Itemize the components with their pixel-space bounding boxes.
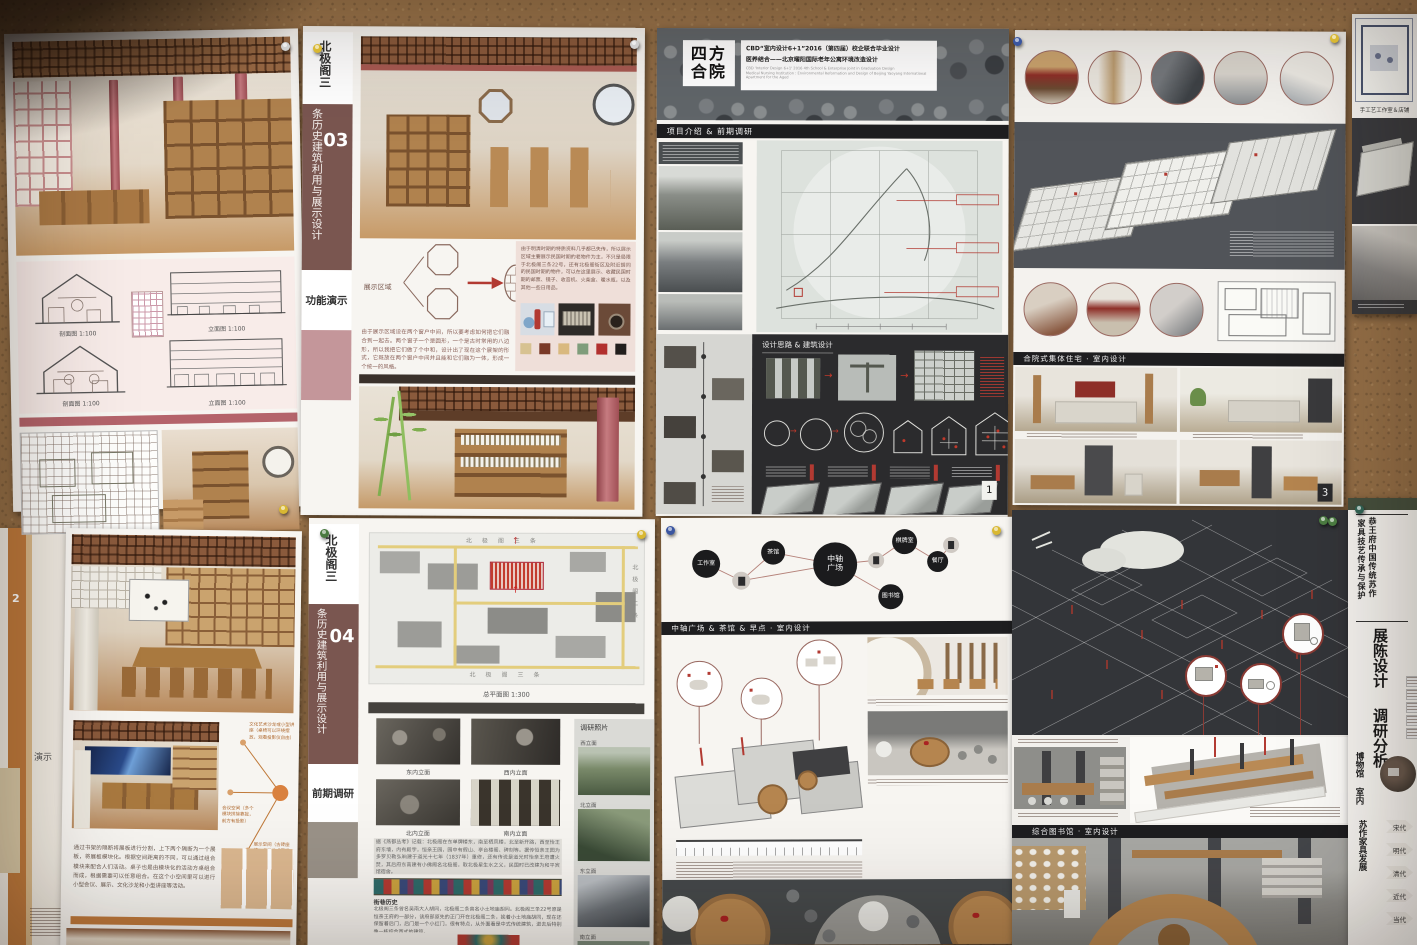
research-photo xyxy=(578,941,650,945)
plan-room-fill xyxy=(1370,45,1398,71)
table-row xyxy=(1406,702,1417,713)
display-shelves xyxy=(386,114,470,206)
intro-text-block xyxy=(659,142,743,164)
sketch-table xyxy=(823,656,835,664)
section-bar-library: 综合图书馆 · 室内设计 xyxy=(1012,825,1353,838)
bubble-studio: 工作室 xyxy=(692,550,720,578)
caption-lines xyxy=(890,467,930,479)
red-dot xyxy=(708,672,711,675)
building-block xyxy=(398,621,442,647)
rendering-strip-bottom xyxy=(66,928,290,945)
plan-outline xyxy=(1361,25,1409,95)
sketch-clock xyxy=(1310,637,1318,645)
caption-lines xyxy=(868,779,1008,785)
dark-partition xyxy=(1252,446,1272,498)
stool xyxy=(974,745,983,754)
stool xyxy=(804,909,817,922)
rendering-plaza-dark xyxy=(662,879,1014,945)
callout-stem xyxy=(1203,692,1204,735)
radio-face xyxy=(562,311,590,325)
research-label: 南立面 xyxy=(580,933,597,941)
page-number: 3 xyxy=(1322,487,1328,498)
bubble-label: 餐厅 xyxy=(932,558,944,565)
red-panel xyxy=(1075,381,1115,397)
poster-exhibit-sheet-top-left: 剖面图 1:100 立面图 1:100 剖面图 1:100 xyxy=(4,28,307,512)
bubble-restaurant: 餐厅 xyxy=(927,551,948,572)
flow-label: 文化艺术沙龙或小型讲座（桌椅可以环绕摆放，观看投影仪自由） xyxy=(249,723,295,743)
research-photo xyxy=(578,747,650,795)
red-divider-band xyxy=(19,412,297,426)
rendering-teahouse xyxy=(867,637,1007,695)
push-pin xyxy=(992,526,1001,535)
era-label: 宋代 xyxy=(1393,822,1406,832)
teahouse-icon-circle xyxy=(732,572,750,590)
arrow-marker: → xyxy=(824,370,832,381)
plan-room-block xyxy=(91,452,134,485)
red-beam xyxy=(361,64,637,71)
plan-thumb xyxy=(914,351,974,401)
sketch-table xyxy=(752,695,770,705)
arrow-marker: → xyxy=(832,426,839,435)
research-photo xyxy=(578,875,650,927)
era-label: 明代 xyxy=(1393,845,1406,855)
timeline-photo xyxy=(664,482,696,504)
road-yellow xyxy=(375,665,639,669)
phase-tag-red xyxy=(872,465,876,481)
road-label-top: 北极阁三条 xyxy=(466,536,546,545)
ceiling-lattice xyxy=(12,37,291,78)
flow-label: 会议空间（多个模块拼接靠拢，前方有投影） xyxy=(222,806,256,825)
heading-group: 恭王府中国传统苏作 家具技艺传承与保护 xyxy=(1356,514,1408,622)
building-block xyxy=(453,646,499,664)
rendering-bedroom-a xyxy=(1015,367,1177,432)
interior-photo xyxy=(471,780,560,826)
push-pin xyxy=(1319,516,1328,525)
road-yellow xyxy=(621,546,624,669)
caption-lines xyxy=(1250,807,1340,819)
header-text-box: CBD“室内设计6+1”2016（第四届）校企联合毕业设计 医养结合——北京曜阳… xyxy=(741,40,937,91)
sidebar-section: 前期调研 xyxy=(308,764,358,822)
house-outline-diagram xyxy=(974,411,1008,457)
sidebar-title-white: 北极阁三 xyxy=(309,524,359,604)
bubble-label: 中轴广场 xyxy=(826,556,844,574)
rendering-bench-corner xyxy=(1014,747,1126,809)
red-item xyxy=(972,913,979,918)
photo-label: 西内立面 xyxy=(471,768,560,777)
description-lines xyxy=(1230,231,1334,258)
white-pillar xyxy=(73,608,98,710)
chair xyxy=(1125,474,1143,496)
timeline-strip xyxy=(656,334,752,514)
poster-beijige-sheet-04: 北极阁三 条历史建筑利用与展示设计 04 前期调研 ↑ ↑ xyxy=(308,518,655,945)
site-plan: ↑ ↑ 北极阁三条 北极阁三条 北极阁二条 xyxy=(368,532,645,685)
sketch-shelf xyxy=(1195,667,1213,681)
mini-table-rows xyxy=(1406,676,1417,738)
detail-callout-circle xyxy=(1185,655,1227,697)
white-cylinder xyxy=(858,901,888,931)
wood-frame xyxy=(1145,374,1153,424)
callout-stem xyxy=(1258,700,1259,735)
dark-cabinet xyxy=(1308,379,1332,423)
caption-lines xyxy=(1358,304,1404,310)
development-label: 苏作家具发展 xyxy=(1356,820,1368,906)
sheet-number: 04 xyxy=(329,626,354,647)
paragraph-left: 由于展示区域设在两个窗户中间，所以要考虑如何把它们融合到一起去。两个窗子一个是圆… xyxy=(361,328,509,371)
wood-frame xyxy=(1033,375,1041,423)
callout-stem xyxy=(699,706,700,744)
sidebar-title-dark: 条历史建筑利用与展示设计 03 xyxy=(302,104,353,270)
color-swatch xyxy=(539,343,550,354)
page-number-tag: 3 xyxy=(1318,484,1333,502)
white-pot xyxy=(1060,797,1068,805)
era-label: 当代 xyxy=(1393,914,1406,924)
era-chevron-jindai: 近代 xyxy=(1386,889,1413,902)
tan-strip xyxy=(26,528,32,945)
reading-tables xyxy=(39,189,150,225)
elevation-strip xyxy=(676,839,862,856)
title-line1: CBD“室内设计6+1”2016（第四届）校企联合毕业设计 xyxy=(746,43,932,52)
ceiling-lattice xyxy=(71,534,295,567)
color-swatch xyxy=(596,344,607,355)
section-drawing xyxy=(30,340,131,398)
rendering-axon-wood xyxy=(1130,737,1351,823)
page-number: 1 xyxy=(986,485,992,496)
ceiling-lattice xyxy=(361,36,637,65)
poster-sifang-heyuan-sheet1: 四方合院 CBD“室内设计6+1”2016（第四届）校企联合毕业设计 医养结合—… xyxy=(656,28,1009,517)
section-bar-housing: 合院式集体住宅 · 室内设计 xyxy=(1013,352,1344,367)
poster-beijige-sheet-03: 北极阁三 条历史建筑利用与展示设计 03 功能演示 展示区域 xyxy=(300,26,645,517)
rendering-circle-cabinet xyxy=(1025,50,1079,104)
axon-panel-dark xyxy=(1352,118,1417,224)
push-pin xyxy=(281,42,290,51)
color-swat​ch xyxy=(577,343,588,354)
calligraphy-board xyxy=(129,579,190,622)
photo-label: 南内立面 xyxy=(471,829,560,838)
people-diagram-circle xyxy=(764,420,790,446)
poster-sifang-heyuan-sheet2: 工作室 茶馆 中轴广场 棋牌室 餐厅 图书馆 中轴广场 & 茶馆 & 早点 · … xyxy=(661,517,1014,945)
drawing-caption: 剖面图 1:100 xyxy=(31,398,131,409)
big-title-exhibition-design: 展陈设计 xyxy=(1370,628,1391,700)
beige-block xyxy=(0,768,20,873)
arrow-marker: ↑ xyxy=(512,586,520,596)
white-pot xyxy=(1028,797,1036,805)
red-item xyxy=(720,916,728,922)
timeline-line xyxy=(703,342,704,506)
dark-post xyxy=(1190,749,1194,775)
push-pin xyxy=(630,40,639,49)
card xyxy=(543,311,554,327)
design-concept-panel: 设计思路 & 建筑设计 → → → → xyxy=(752,334,1008,515)
screen-glow xyxy=(1388,768,1399,776)
elevation-drawing xyxy=(164,331,289,397)
sheet-number: 2 xyxy=(12,592,20,605)
detail-plan-thumb xyxy=(131,291,164,338)
timeline-photo xyxy=(664,346,696,368)
section-label: 功能演示 xyxy=(306,293,348,308)
bubble-label: 棋牌室 xyxy=(896,538,914,545)
medallion-photo xyxy=(458,935,520,945)
bubble-teahouse: 茶馆 xyxy=(761,541,785,565)
research-photo xyxy=(578,809,650,861)
chairs xyxy=(122,667,272,699)
plan-thumb xyxy=(838,354,896,400)
timeline-dot xyxy=(701,354,706,359)
dark-door xyxy=(1085,445,1113,495)
bubble-central-plaza: 中轴广场 xyxy=(813,542,857,586)
stool-table xyxy=(1284,476,1318,490)
section-bar-plaza: 中轴广场 & 茶馆 & 早点 · 室内设计 xyxy=(661,621,1013,635)
title-badge-box: 四方合院 xyxy=(683,40,735,86)
detail-callout-circle xyxy=(741,678,783,720)
title-en1: CBD 'Interior Design 6+1' 2016 4th Schoo… xyxy=(746,66,932,70)
phase-tag-red xyxy=(810,464,814,480)
red-mark xyxy=(1264,737,1266,755)
white-pillar xyxy=(74,750,91,828)
road-yellow xyxy=(378,545,638,549)
push-pin xyxy=(637,530,646,539)
era-chevron-song: 宋代 xyxy=(1386,820,1413,833)
photo-label: 北内立面 xyxy=(376,828,460,837)
timeline-dot xyxy=(701,394,706,399)
axon-plan-thumb xyxy=(822,482,882,515)
diagram-label: 展示区域 xyxy=(364,282,392,292)
window-wall xyxy=(13,81,73,207)
plan-thumb xyxy=(766,358,820,398)
red-dot xyxy=(750,689,753,692)
badge xyxy=(523,317,534,328)
sofa-block xyxy=(1228,400,1300,422)
building-block xyxy=(380,551,420,573)
paragraph-right: 由于明清时期的特质资料几乎都已失传，所以展示区域主要展示民国时期的老物件为主，不… xyxy=(521,246,631,299)
rendering-reading-hall xyxy=(69,534,295,713)
house-outline-diagram xyxy=(930,415,968,457)
poster-suzuo-furniture-partial: 恭王府中国传统苏作 家具技艺传承与保护 展陈设计 调研分析 博物馆 室内 苏作家… xyxy=(1348,498,1417,945)
plan-room xyxy=(1302,293,1330,335)
rendering-circle-bed xyxy=(1280,51,1334,105)
bamboo-leaves xyxy=(367,404,437,454)
location-map xyxy=(756,140,1003,333)
push-pin xyxy=(1013,37,1022,46)
sidebar-gray-band xyxy=(308,822,358,878)
color-swatch xyxy=(520,343,531,354)
vertical-title-part2: 条历史建筑利用与展示设计 xyxy=(308,108,325,240)
section-label-partial: 演示 xyxy=(34,750,52,763)
camera-lens xyxy=(608,314,624,330)
painted-beam-photo xyxy=(374,878,562,896)
record-paragraph: 据《燕都丛考》记载：北极阁在东单牌楼东，南至栖凤楼，北至新开路，西至怡王府东墙，… xyxy=(374,838,562,875)
stool xyxy=(786,890,799,903)
red-mark xyxy=(1214,737,1216,757)
detail-callout-circle xyxy=(1240,663,1282,705)
road-yellow xyxy=(453,546,456,669)
detail-callout-circle xyxy=(676,661,722,707)
sketch-cabinet xyxy=(1294,623,1310,641)
interior-photo xyxy=(471,719,560,765)
antique-photo-bottles xyxy=(520,303,554,335)
axon-red-mark xyxy=(1164,173,1167,176)
round-wood-table xyxy=(910,737,950,767)
rendering-bamboo-room xyxy=(358,386,635,509)
rendering-circle-bedroom xyxy=(1214,51,1268,105)
rendering-circle-desk xyxy=(1088,50,1142,104)
white-pot xyxy=(1044,797,1052,805)
floor-plan-drawing xyxy=(1217,281,1335,342)
vertical-title-part2: 条历史建筑利用与展示设计 xyxy=(314,608,329,734)
white-stand xyxy=(1064,890,1080,918)
rendering-round-table xyxy=(868,711,1008,775)
road-label-bottom: 北极阁三条 xyxy=(469,670,549,679)
people-diagram-circle xyxy=(800,418,832,450)
caption-lines xyxy=(1018,739,1118,744)
bookshelf-wall xyxy=(163,98,293,218)
color-swatch xyxy=(558,343,569,354)
plan-caption: 总平面图 1:300 xyxy=(368,688,644,699)
red-column-mark xyxy=(700,748,704,766)
house-outline-diagram xyxy=(892,419,924,455)
dark-pillar xyxy=(1076,751,1085,805)
section-drawing xyxy=(29,268,126,328)
site-photo xyxy=(658,294,742,330)
history-paragraph: 北极阁三条曾名吴南大人胡同，北极阁二条曾名小土地庙胡同。北极阁三条22号原是恒亲… xyxy=(374,906,562,933)
interior-photo xyxy=(376,779,460,825)
paragraph-lines xyxy=(676,861,862,880)
push-pin xyxy=(320,529,329,538)
heading-line-right: 恭王府中国传统苏作 xyxy=(1368,517,1377,598)
research-label: 东立面 xyxy=(580,867,597,875)
octagon-glass xyxy=(482,92,510,120)
sidebar-title-white: 北极阁三 xyxy=(303,32,353,104)
axon-plan-thumb xyxy=(760,482,820,515)
sketch-table xyxy=(690,680,708,690)
push-pin xyxy=(279,505,288,514)
stair-steps xyxy=(1262,858,1322,898)
axon-band-dark xyxy=(1014,122,1346,270)
bookshelf xyxy=(172,746,217,791)
book-spines xyxy=(461,435,561,446)
rendering-bedroom-b xyxy=(1180,368,1342,433)
road-label-right: 北极阁二条 xyxy=(630,564,639,624)
bubble-chess-room: 棋牌室 xyxy=(892,529,917,554)
ceiling-lattice xyxy=(73,720,219,742)
poster-exhibit-sheet-bottom-left: 文化艺术沙龙或小型讲座（桌椅可以环绕摆放，观看投影仪自由） 会议空间（多个模块拼… xyxy=(60,528,302,945)
research-photo-panel: 调研照片 西立面 北立面 东立面 南立面 xyxy=(574,719,655,945)
stool xyxy=(822,929,835,942)
plan-drawing xyxy=(1355,18,1413,102)
orange-band xyxy=(8,528,26,945)
caption-band xyxy=(1352,300,1417,314)
palette-row xyxy=(520,343,632,358)
exhibit-shape-diagram xyxy=(397,240,527,327)
plan-room xyxy=(1225,288,1257,310)
caption-lines xyxy=(1018,813,1118,818)
wood-slat-wall xyxy=(945,643,1003,683)
vanity-table xyxy=(1200,470,1240,486)
poster-badge-title: 四方合院 xyxy=(690,45,728,80)
antique-photo-camera xyxy=(598,304,630,336)
cork-board: 2 演示 剖面图 1:100 xyxy=(0,0,1417,945)
callout-stem xyxy=(1300,650,1301,735)
stool xyxy=(988,755,997,764)
floor-plan-drawing xyxy=(20,430,160,535)
paragraph-lines xyxy=(30,908,64,938)
plan-caption: 手工艺工作室＆店铺 xyxy=(1352,106,1417,114)
legend-red-lines xyxy=(980,357,1004,397)
round-window xyxy=(592,84,634,126)
rendering-exhibit-room xyxy=(360,36,637,239)
caption-lines xyxy=(1193,434,1303,440)
dark-post xyxy=(1240,743,1244,769)
round-window xyxy=(262,446,295,479)
sidebar-section: 功能演示 xyxy=(301,270,351,330)
push-pin xyxy=(1355,505,1364,514)
rendering-meeting-space xyxy=(72,720,219,830)
bottle xyxy=(534,309,540,329)
poster-craft-studio-partial: 手工艺工作室＆店铺 xyxy=(1352,14,1417,314)
title-en2: Medical Nursing Institution : Environmen… xyxy=(746,71,932,79)
white-cylinder xyxy=(876,741,892,757)
era-chevron-ming: 明代 xyxy=(1386,843,1413,856)
mid-band xyxy=(1012,735,1353,825)
plan-room xyxy=(1228,314,1286,336)
elevation-marks xyxy=(676,847,862,856)
red-item xyxy=(924,741,929,745)
caption-lines xyxy=(766,466,806,478)
bubble-label: 图书馆 xyxy=(882,593,900,600)
timeline-caption-lines xyxy=(712,486,744,502)
plan-dot xyxy=(1387,57,1393,63)
arrow-marker: → xyxy=(900,371,908,382)
plan-room-block xyxy=(52,494,107,523)
section-label: 前期调研 xyxy=(312,786,354,801)
push-pin xyxy=(1330,34,1339,43)
red-dot xyxy=(1215,665,1218,668)
icon-glyph xyxy=(873,556,879,564)
timeline-photo xyxy=(664,416,696,438)
sketch-table xyxy=(805,658,817,666)
heading-line-left: 家具技艺传承与保护 xyxy=(1357,519,1366,600)
era-label: 近代 xyxy=(1393,891,1406,901)
stool xyxy=(958,751,967,760)
projection-screen xyxy=(85,746,171,775)
detail-callout-circle xyxy=(796,639,842,685)
phase-tag-red xyxy=(996,465,1000,481)
push-pin xyxy=(313,44,322,53)
rendering-circle-vanity xyxy=(1149,283,1203,337)
axon-plan-group xyxy=(671,725,867,845)
plant xyxy=(1190,388,1206,406)
long-table xyxy=(132,647,262,669)
poster-library-wireframe-sheet: 综合图书馆 · 室内设计 xyxy=(1012,510,1353,945)
rendering-circle-lounge xyxy=(1023,282,1077,336)
dark-post xyxy=(1290,739,1294,765)
era-label: 清代 xyxy=(1393,868,1406,878)
white-cylinder xyxy=(662,896,698,932)
rendering-circle-screen xyxy=(1086,282,1140,336)
phase-tag-red xyxy=(934,465,938,481)
rendering-library-interior xyxy=(1012,838,1353,945)
red-column xyxy=(597,398,620,502)
caption-lines xyxy=(828,466,868,478)
table-row xyxy=(1406,689,1417,700)
paragraph: 通过书架的隔断将展板进行分割，上下两个隔断为一个展板，将展板模块化。根据空间距离… xyxy=(73,844,216,908)
drawing-caption: 立面图 1:100 xyxy=(165,397,289,408)
round-wood-table xyxy=(690,894,770,945)
timeline-dot xyxy=(701,434,706,439)
timeline-photo xyxy=(712,378,744,400)
research-header: 调研照片 xyxy=(580,723,608,733)
timeline-dot xyxy=(701,474,706,479)
axon-red-mark xyxy=(1074,192,1077,195)
